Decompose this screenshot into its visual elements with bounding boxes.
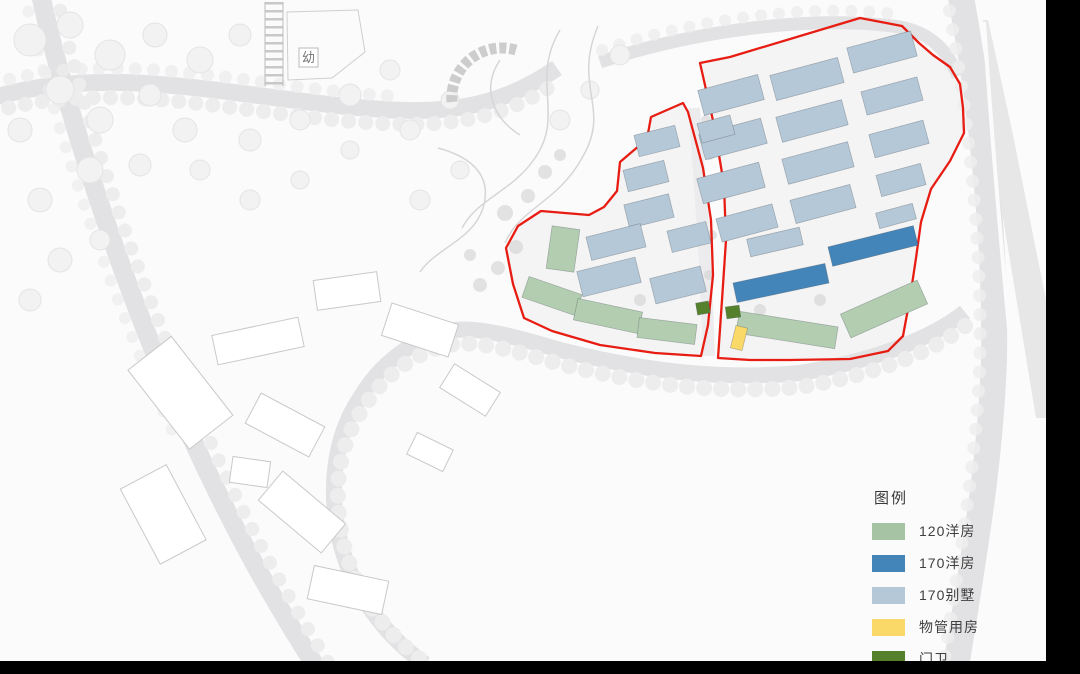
tree-icon	[521, 189, 535, 203]
existing-buildings-layer	[120, 272, 500, 615]
legend-swatch-guard	[872, 651, 905, 662]
kindergarten-area: 幼	[265, 2, 365, 86]
tree-icon	[139, 84, 161, 106]
tree-icon	[339, 84, 361, 106]
existing-building	[313, 272, 381, 311]
tree-icon	[634, 294, 646, 306]
legend-swatch-villa170	[872, 587, 905, 604]
existing-building	[229, 456, 270, 487]
tree-icon	[538, 165, 552, 179]
tree-icon	[814, 294, 826, 306]
tree-icon	[14, 24, 46, 56]
tree-icon	[400, 120, 420, 140]
tree-icon	[28, 188, 52, 212]
existing-building	[407, 432, 453, 471]
tree-icon	[77, 157, 103, 183]
tree-icon	[57, 12, 83, 38]
tree-icon	[451, 161, 469, 179]
tree-icon	[497, 205, 513, 221]
legend-item-property: 物管用房	[872, 617, 1042, 637]
tree-icon	[90, 230, 110, 250]
tree-icon	[129, 154, 151, 176]
tree-icon	[190, 160, 210, 180]
tree-icon	[290, 110, 310, 130]
legend-item-label: 物管用房	[919, 617, 979, 637]
tree-icon	[187, 47, 213, 73]
tree-icon	[554, 149, 566, 161]
legend-items: 120洋房170洋房170别墅物管用房门卫	[872, 521, 1042, 661]
legend-swatch-flat120	[872, 523, 905, 540]
tree-chain-icon	[338, 326, 965, 661]
legend-item-label: 170洋房	[919, 553, 975, 573]
tree-icon	[240, 190, 260, 210]
legend-swatch-flat170	[872, 555, 905, 572]
existing-building	[212, 317, 304, 365]
screenshot-canvas: 幼	[0, 0, 1080, 674]
existing-building	[440, 364, 501, 416]
legend-item-flat170: 170洋房	[872, 553, 1042, 573]
building-guard	[696, 301, 711, 315]
tree-icon	[610, 45, 630, 65]
existing-building	[245, 393, 325, 457]
kindergarten-label: 幼	[302, 50, 315, 65]
tree-icon	[380, 60, 400, 80]
legend-item-label: 120洋房	[919, 521, 975, 541]
tree-icon	[48, 248, 72, 272]
tree-icon	[229, 24, 251, 46]
legend-item-guard: 门卫	[872, 649, 1042, 661]
existing-building	[120, 465, 206, 564]
existing-building	[307, 565, 388, 614]
legend-item-flat120: 120洋房	[872, 521, 1042, 541]
building-flat120	[546, 226, 580, 272]
tree-icon	[341, 141, 359, 159]
tree-icon	[19, 289, 41, 311]
legend-swatch-property	[872, 619, 905, 636]
legend: 图例 120洋房170洋房170别墅物管用房门卫	[872, 487, 1042, 661]
tree-icon	[491, 261, 505, 275]
legend-title: 图例	[874, 487, 1042, 508]
tree-icon	[239, 129, 261, 151]
tree-icon	[95, 40, 125, 70]
tree-icon	[8, 118, 32, 142]
tree-icon	[550, 110, 570, 130]
legend-item-villa170: 170别墅	[872, 585, 1042, 605]
tree-icon	[410, 190, 430, 210]
legend-item-label: 170别墅	[919, 585, 975, 605]
tree-icon	[473, 278, 487, 292]
legend-item-label: 门卫	[919, 649, 949, 661]
tree-icon	[291, 171, 309, 189]
kindergarten-plot-outline	[287, 10, 365, 80]
tree-icon	[509, 240, 523, 254]
tree-icon	[464, 249, 476, 261]
tree-icon	[143, 23, 167, 47]
tree-icon	[46, 76, 74, 104]
tree-icon	[87, 107, 113, 133]
tree-icon	[173, 118, 197, 142]
building-guard	[725, 305, 741, 319]
site-plan-map: 幼	[0, 0, 1046, 661]
